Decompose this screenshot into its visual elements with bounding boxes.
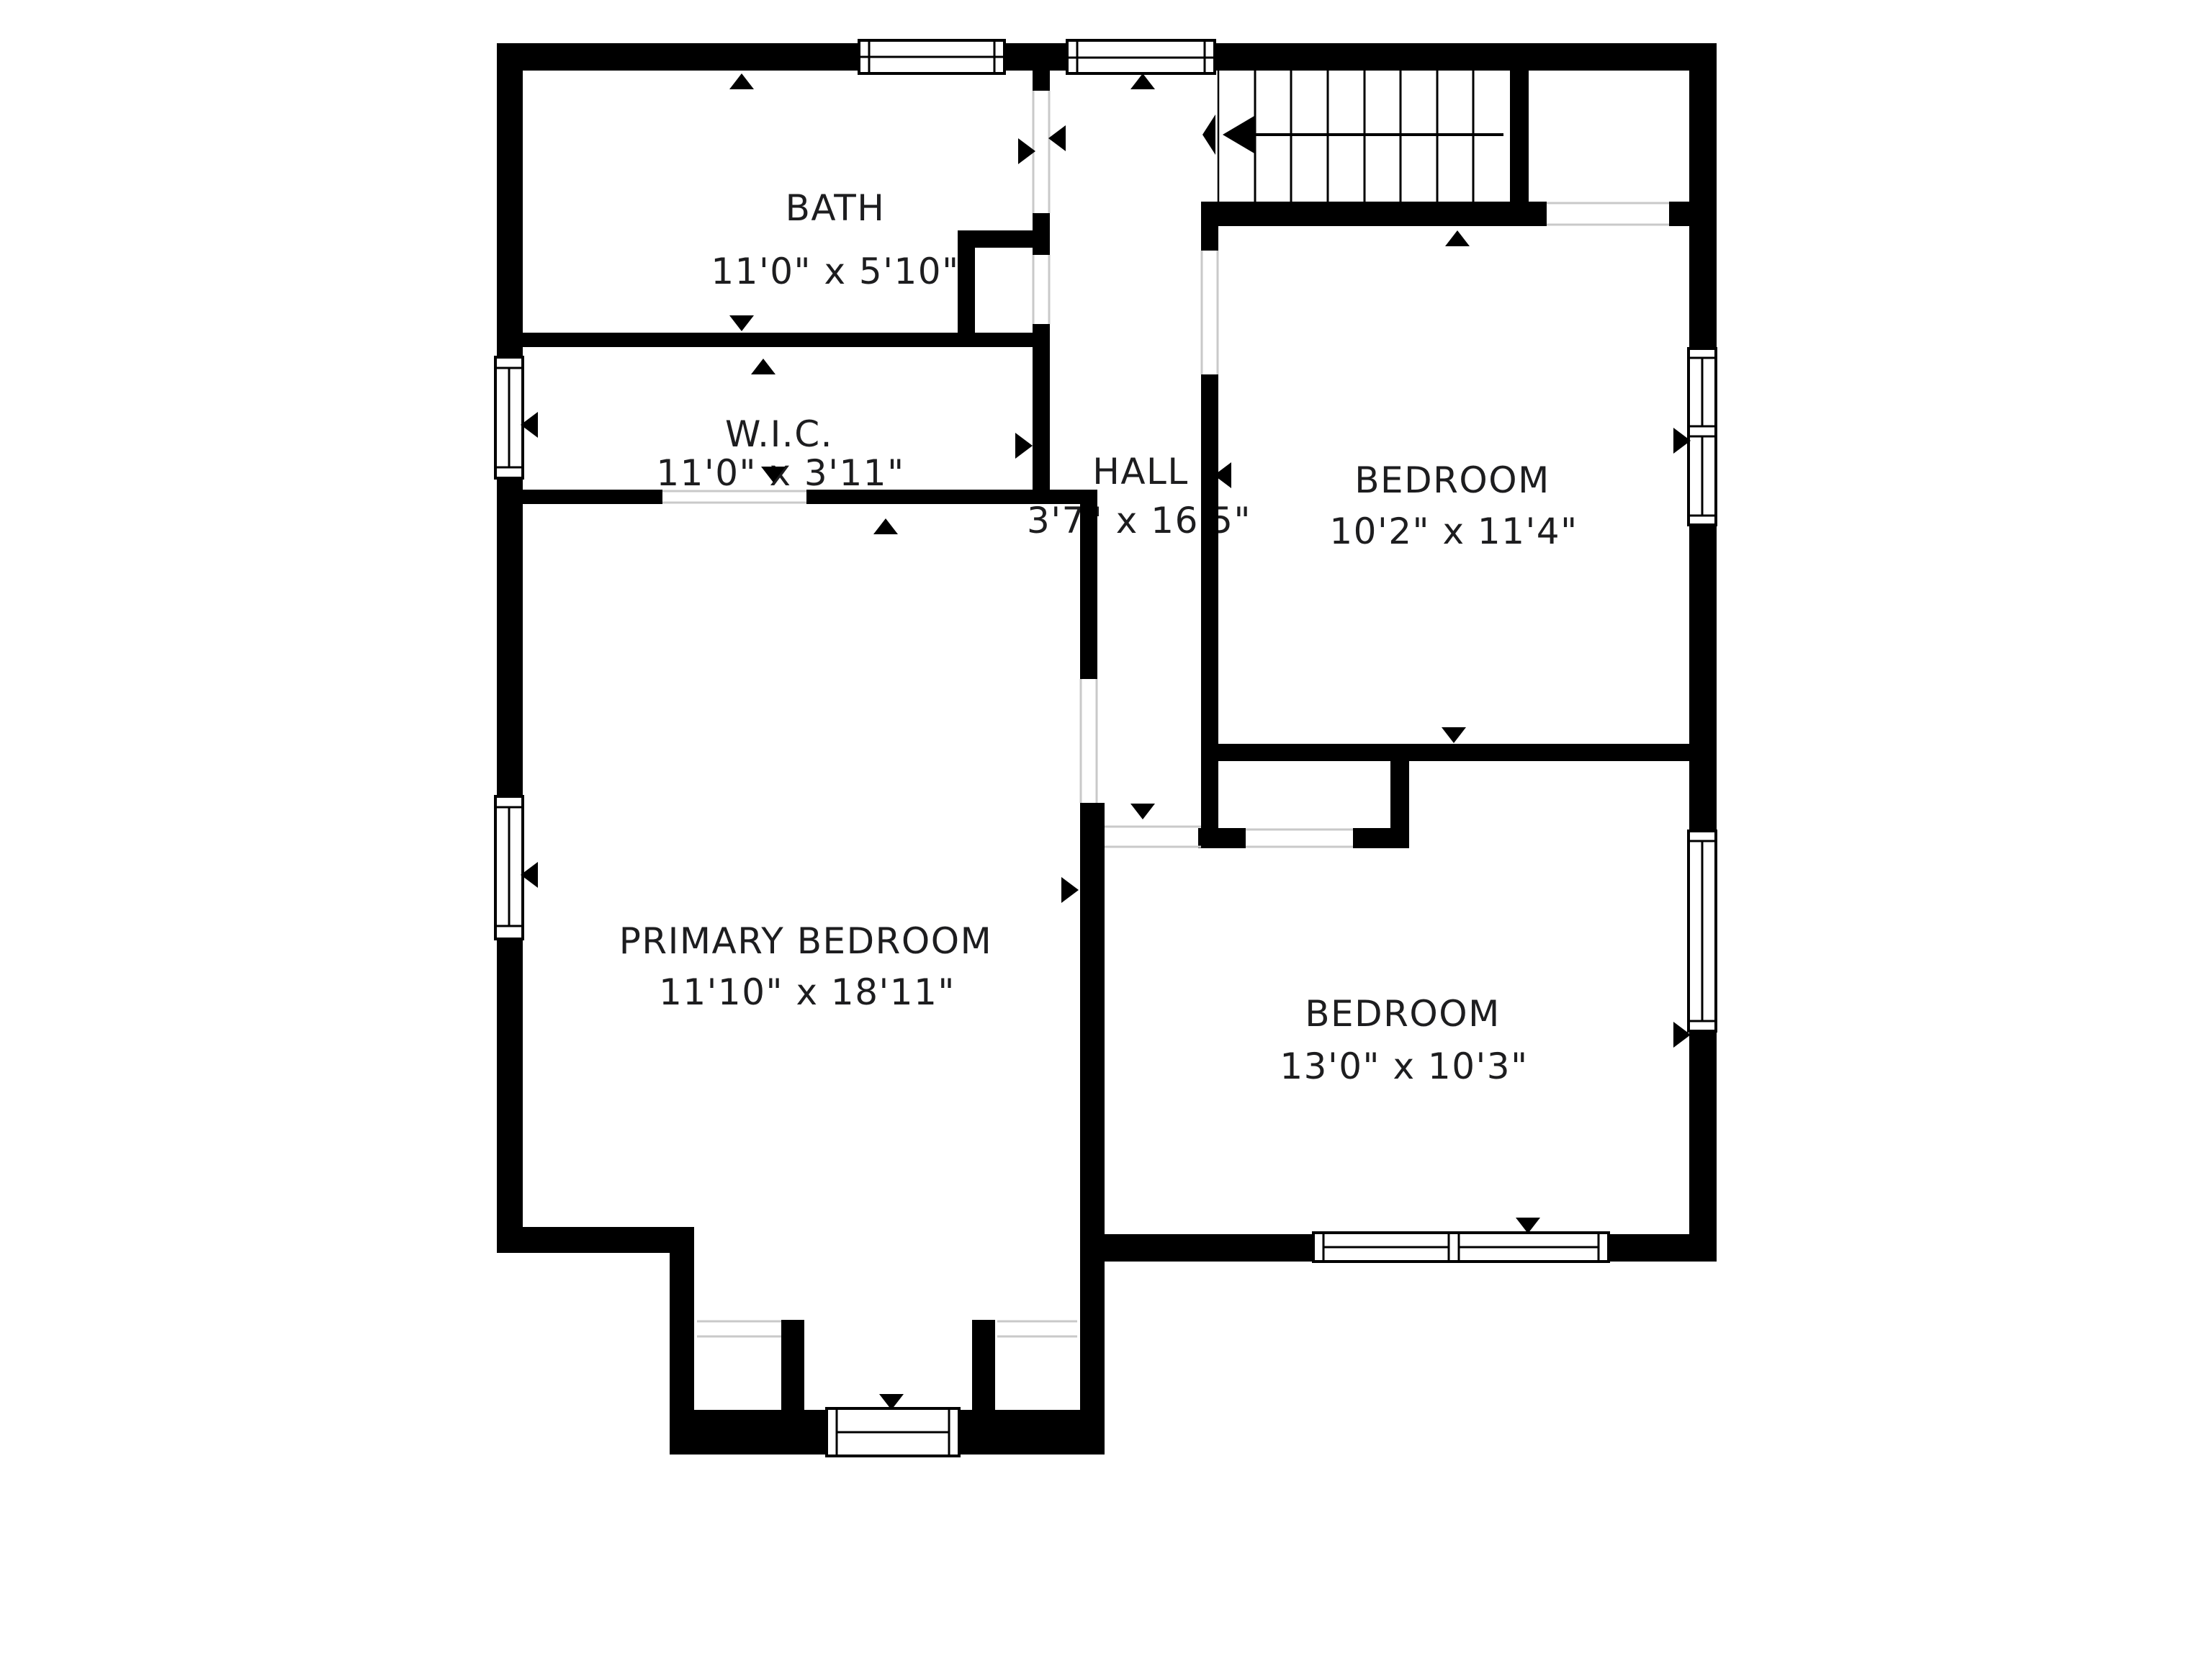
window-icon [859,40,1004,73]
room-name-label: HALL [1092,451,1189,493]
marker-right-icon [1061,877,1079,903]
room-name-label: BATH [786,187,886,229]
window-icon [495,357,523,478]
marker-down-icon [1442,727,1466,743]
alcove-left-opening [697,1321,781,1336]
marker-up-icon [729,73,754,89]
marker-up-icon [1130,73,1155,89]
hall-south-opening [1105,827,1201,847]
window-icon [1313,1233,1609,1262]
marker-up-icon [873,518,898,534]
room-dimensions-label: 11'0" x 5'10" [711,251,959,292]
floor-plan-svg: BATH 11'0" x 5'10" W.I.C. 11'0" x 3'11" … [0,0,2212,1659]
direction-markers [521,73,1691,1410]
marker-right-icon [1015,433,1033,459]
window-icon [495,796,523,939]
bath-door-opening [1033,91,1049,213]
hall-closet-opening [1033,255,1049,324]
stairs-entry-marker-icon [1202,114,1215,155]
room-dimensions-label: 13'0" x 10'3" [1280,1046,1528,1087]
marker-down-icon [1516,1218,1540,1233]
room-name-label: PRIMARY BEDROOM [619,920,992,962]
window-icon [1689,831,1716,1031]
staircase [1202,71,1503,202]
marker-up-icon [1445,230,1470,246]
landing-bedroom-opening [1547,203,1669,225]
room-dimensions-label: 11'10" x 18'11" [659,971,956,1013]
window-icon [1689,349,1716,525]
primary-bedroom-door-opening [1081,679,1097,803]
alcove-right-opening [997,1321,1077,1336]
room-name-label: BEDROOM [1305,993,1501,1035]
marker-up-icon [751,359,775,374]
marker-down-icon [1130,804,1155,819]
marker-down-icon [729,315,754,331]
window-icon [1067,40,1215,73]
stairs-arrowhead-icon [1223,116,1254,153]
marker-left-icon [1048,125,1066,151]
room-name-label: W.I.C. [725,413,833,455]
entry-door-icon [827,1408,959,1456]
bedroom-entry-opening [1246,829,1353,847]
room-name-label: BEDROOM [1354,459,1550,501]
bedroom-door-opening [1202,251,1218,374]
floor-plan-page: BATH 11'0" x 5'10" W.I.C. 11'0" x 3'11" … [0,0,2212,1659]
room-dimensions-label: 10'2" x 11'4" [1329,511,1578,552]
